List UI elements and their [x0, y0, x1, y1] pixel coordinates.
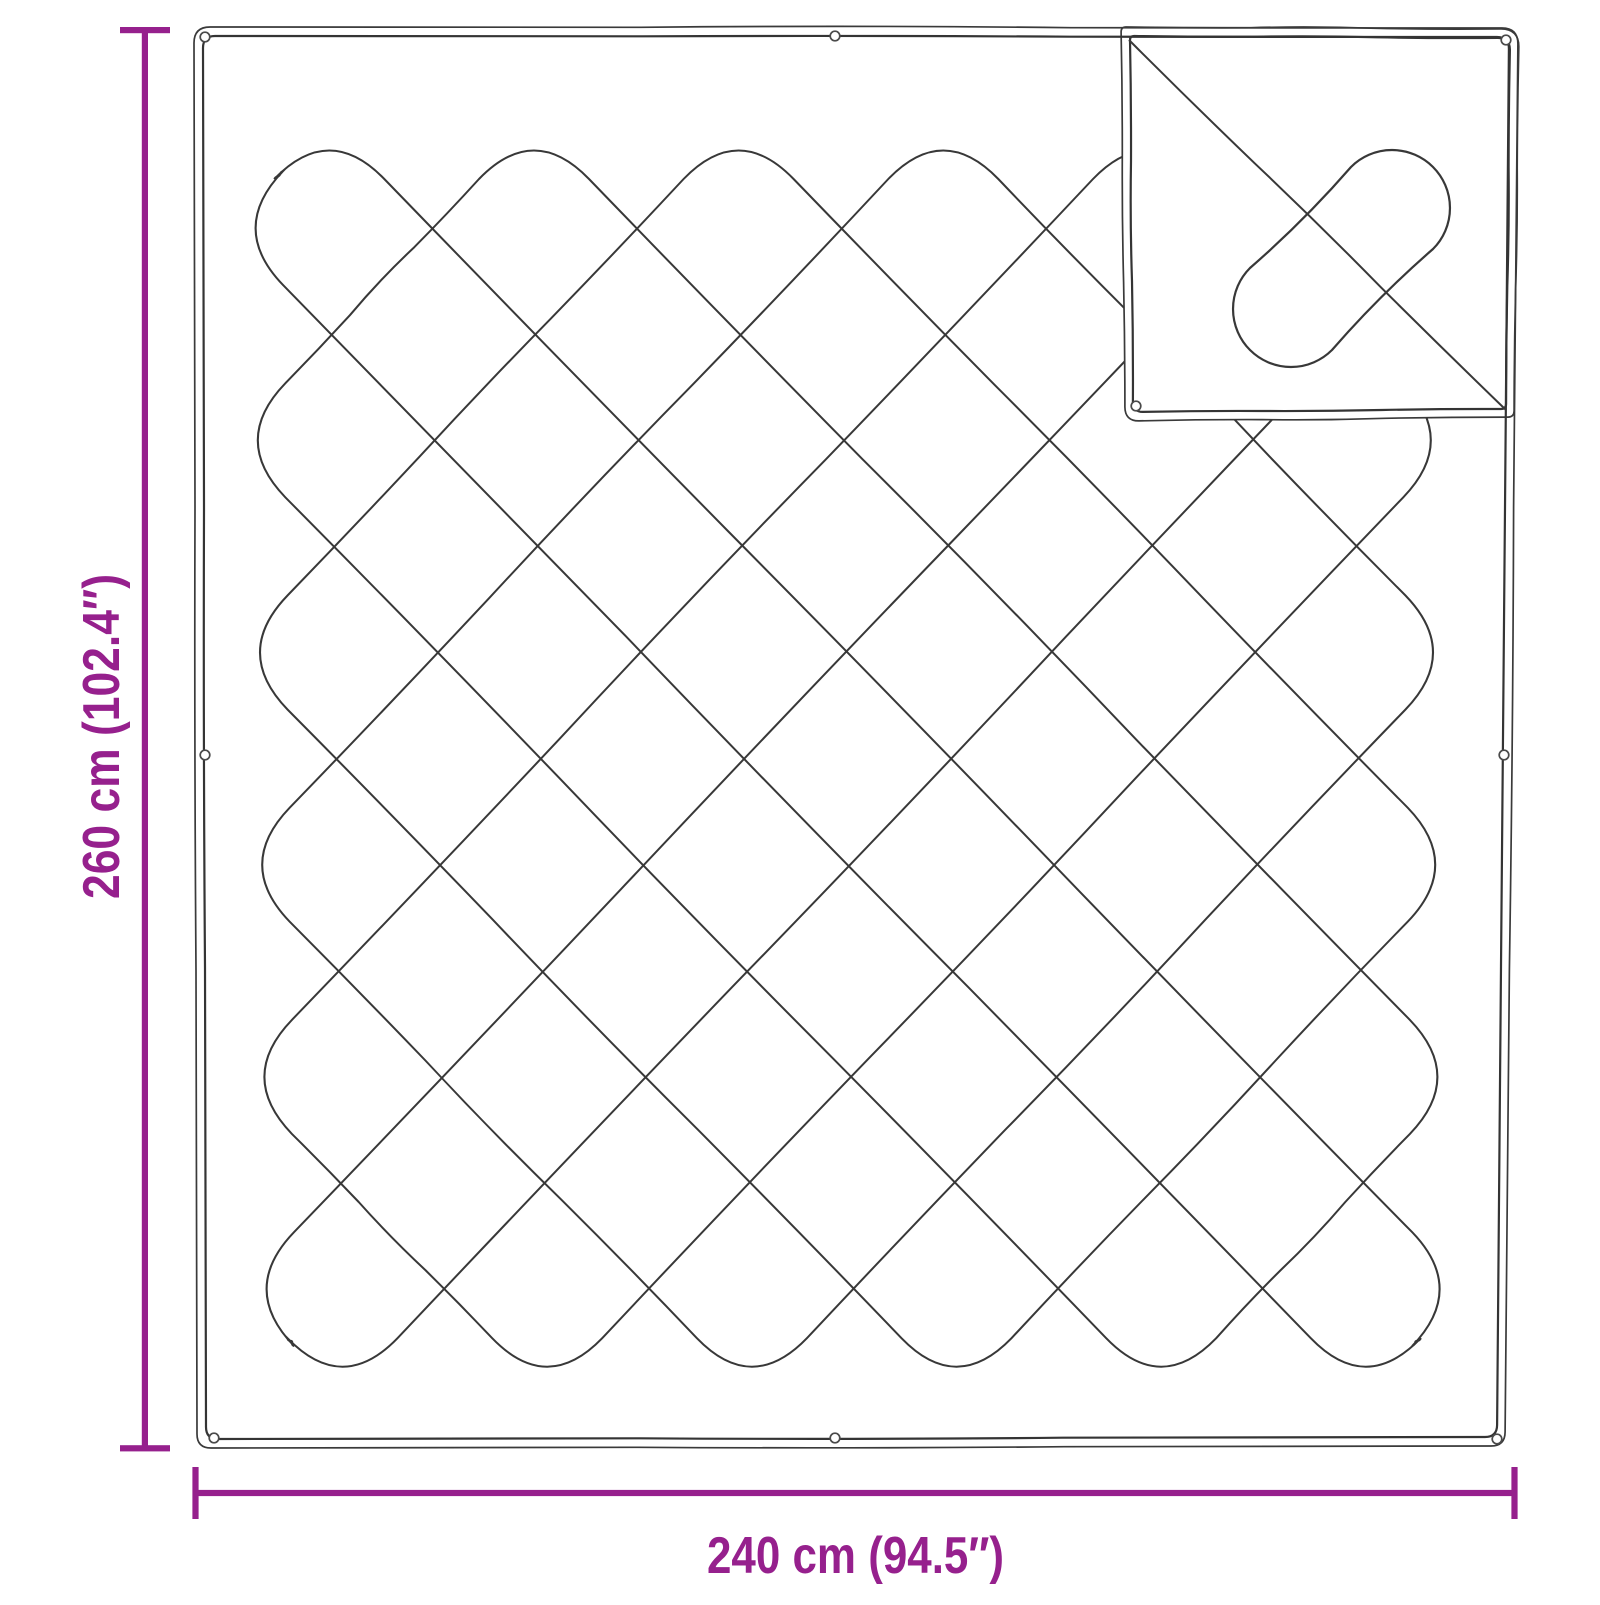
svg-text:240 cm (94.5″): 240 cm (94.5″) [707, 1527, 1004, 1585]
svg-text:260 cm (102.4″): 260 cm (102.4″) [73, 574, 131, 899]
